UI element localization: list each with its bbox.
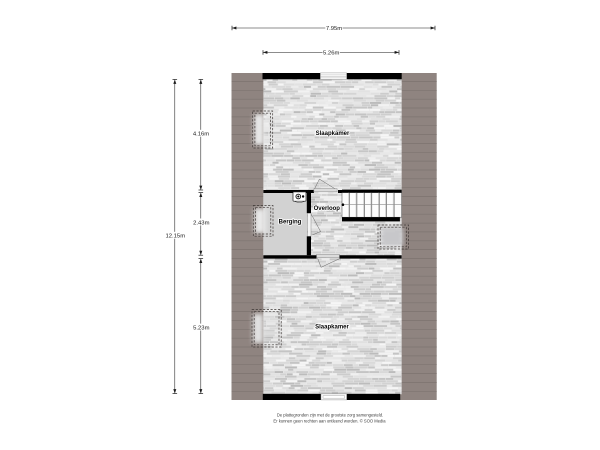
svg-text:12.15m: 12.15m xyxy=(165,234,185,240)
svg-text:4.16m: 4.16m xyxy=(193,132,209,138)
svg-text:2.43m: 2.43m xyxy=(193,220,209,226)
svg-text:Berging: Berging xyxy=(279,220,302,226)
svg-text:Overloop: Overloop xyxy=(314,206,341,212)
svg-text:7.95m: 7.95m xyxy=(326,26,342,32)
svg-text:5.23m: 5.23m xyxy=(193,325,209,331)
svg-text:De plattegronden zijn met de g: De plattegronden zijn met de grootste zo… xyxy=(277,413,383,418)
svg-text:Er kunnen geen rechten aan ont: Er kunnen geen rechten aan ontleend word… xyxy=(273,418,386,423)
svg-text:5.26m: 5.26m xyxy=(323,51,339,57)
svg-text:Slaapkamer: Slaapkamer xyxy=(315,325,349,331)
svg-text:Slaapkamer: Slaapkamer xyxy=(316,131,350,137)
